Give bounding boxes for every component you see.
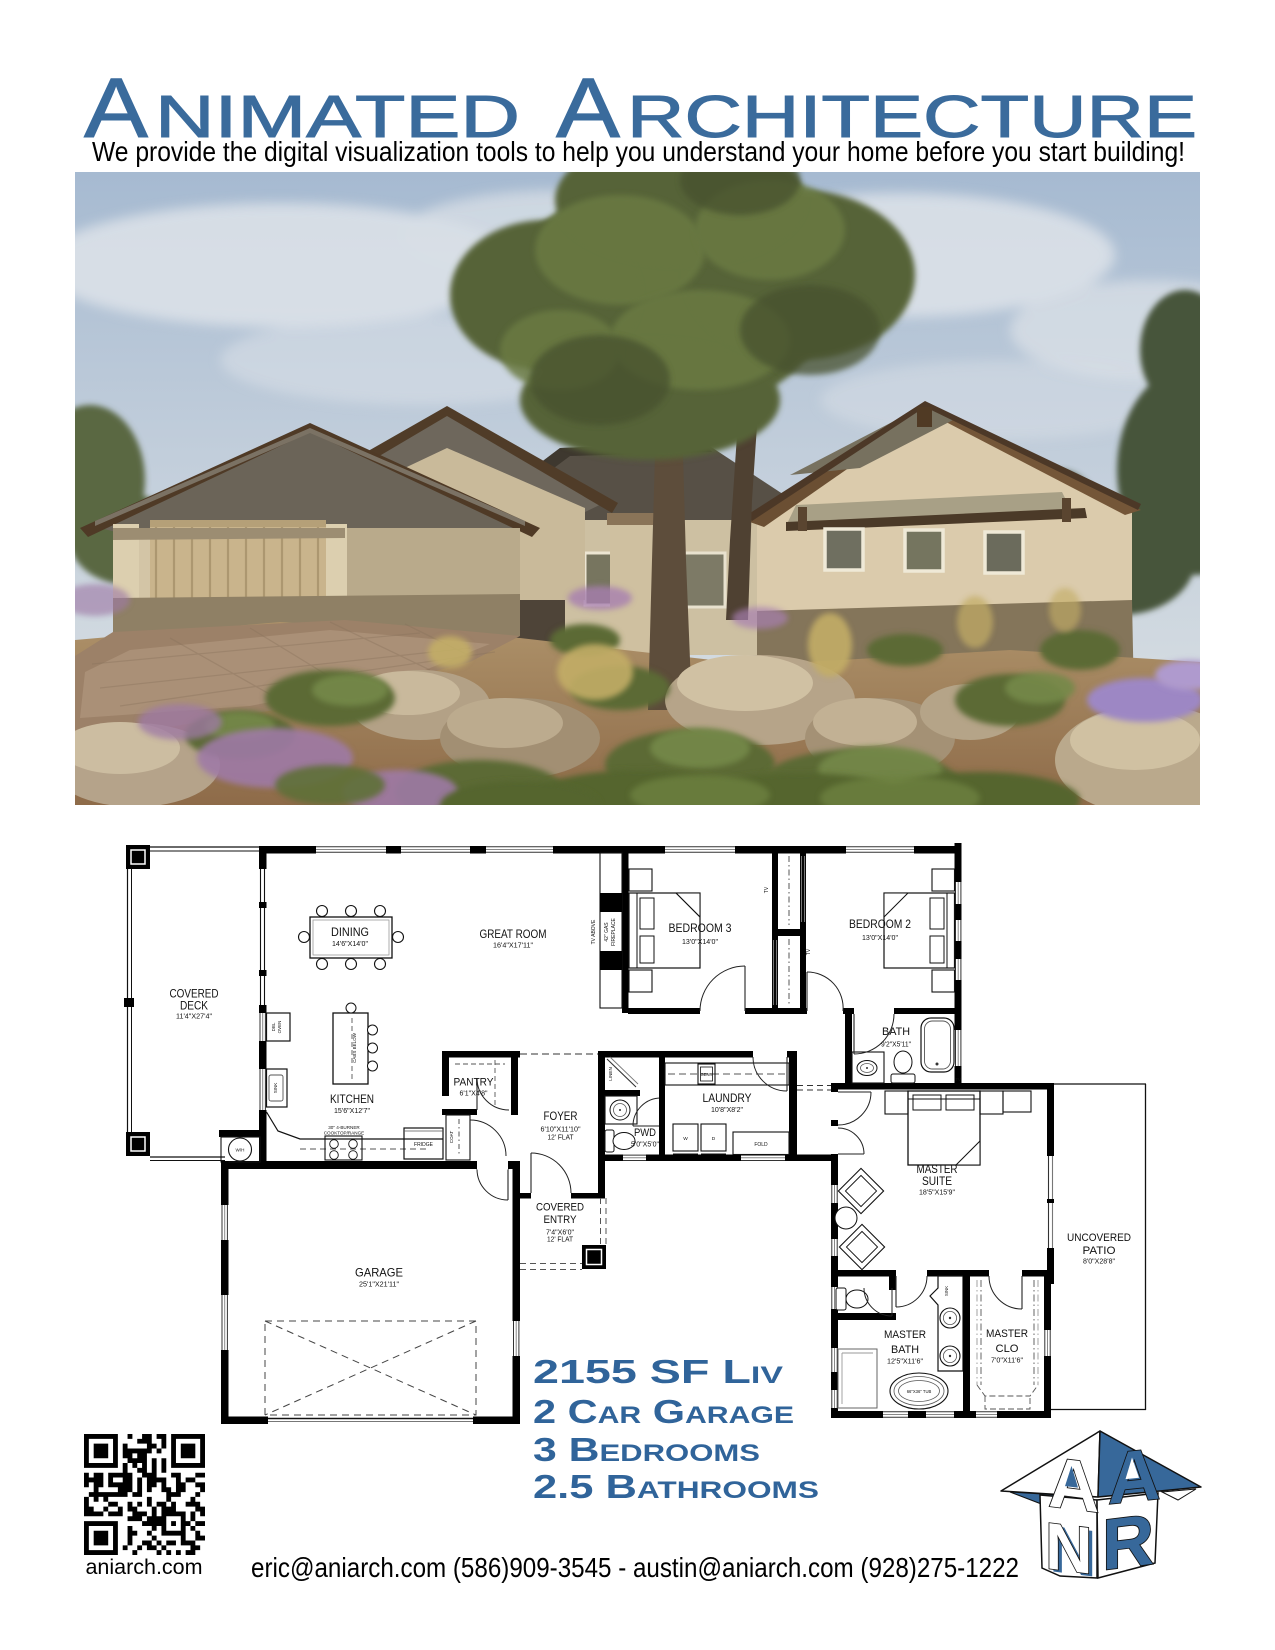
svg-text:TV: TV — [764, 886, 770, 893]
svg-text:DINING: DINING — [331, 925, 369, 939]
svg-text:DBL: DBL — [271, 1022, 276, 1031]
svg-text:FRIDGE: FRIDGE — [414, 1142, 434, 1148]
svg-text:BATH: BATH — [882, 1026, 910, 1038]
svg-text:PANTRY: PANTRY — [454, 1077, 494, 1089]
svg-text:2.5 BATHROOMS: 2.5 BATHROOMS — [533, 1468, 819, 1505]
svg-text:MASTER: MASTER — [884, 1329, 926, 1341]
svg-text:OVEN: OVEN — [277, 1021, 282, 1034]
svg-text:D: D — [712, 1136, 716, 1142]
svg-text:COAT: COAT — [449, 1131, 454, 1144]
svg-text:5'0"X5'0": 5'0"X5'0" — [631, 1142, 660, 1149]
svg-text:7'0"X11'6": 7'0"X11'6" — [991, 1358, 1024, 1365]
svg-text:42" GAS: 42" GAS — [604, 922, 610, 942]
svg-text:12'5"X11'6": 12'5"X11'6" — [887, 1359, 924, 1366]
svg-text:PATIO: PATIO — [1083, 1245, 1116, 1257]
svg-text:GENR: GENR — [700, 1072, 712, 1077]
svg-text:13'0"X14'0": 13'0"X14'0" — [682, 939, 719, 946]
svg-text:TV: TV — [955, 1077, 962, 1082]
svg-text:BATH: BATH — [891, 1344, 919, 1356]
svg-text:16'4"X17'11": 16'4"X17'11" — [493, 943, 534, 950]
svg-text:12' FLAT: 12' FLAT — [547, 1237, 574, 1244]
svg-text:R: R — [1102, 1500, 1154, 1586]
svg-text:6'1"X4'8": 6'1"X4'8" — [460, 1091, 489, 1098]
svg-text:W: W — [683, 1136, 688, 1142]
svg-text:GARAGE: GARAGE — [355, 1266, 403, 1280]
svg-text:W/H: W/H — [236, 1148, 245, 1153]
svg-text:GREAT ROOM: GREAT ROOM — [480, 927, 547, 941]
svg-text:BEDROOM 3: BEDROOM 3 — [669, 921, 732, 935]
svg-text:MASTER: MASTER — [917, 1164, 958, 1176]
svg-text:COOKTOP/RANGE: COOKTOP/RANGE — [324, 1131, 365, 1136]
svg-text:TV: TV — [806, 948, 812, 955]
svg-text:BEDROOM 2: BEDROOM 2 — [849, 917, 911, 931]
svg-text:11'4"X27'4": 11'4"X27'4" — [176, 1014, 213, 1021]
svg-text:10'8"X8'2": 10'8"X8'2" — [711, 1107, 744, 1114]
svg-text:9'2"X5'11": 9'2"X5'11" — [881, 1042, 911, 1049]
svg-text:We provide the digital visuali: We provide the digital visualization too… — [92, 136, 1185, 167]
svg-text:DECK: DECK — [180, 1001, 208, 1013]
svg-text:2155 SF LIV: 2155 SF LIV — [533, 1353, 783, 1390]
svg-text:UNCOVERED: UNCOVERED — [1067, 1232, 1131, 1244]
svg-text:FIREPLACE: FIREPLACE — [611, 917, 617, 945]
svg-text:SUITE: SUITE — [922, 1176, 952, 1188]
svg-text:FOLD: FOLD — [754, 1142, 768, 1148]
svg-text:CABS BELOW: CABS BELOW — [352, 1032, 357, 1063]
svg-text:FOYER: FOYER — [544, 1109, 578, 1123]
svg-text:13'0"X14'0": 13'0"X14'0" — [862, 935, 899, 942]
svg-text:2 CAR GARAGE: 2 CAR GARAGE — [533, 1393, 794, 1430]
svg-text:66"X36" TUB: 66"X36" TUB — [907, 1389, 932, 1394]
svg-text:aniarch.com: aniarch.com — [85, 1555, 202, 1579]
svg-text:TV ABOVE: TV ABOVE — [591, 919, 597, 944]
svg-text:eric@aniarch.com (586)909-3545: eric@aniarch.com (586)909-3545 - austin@… — [251, 1552, 1019, 1583]
svg-text:CLO: CLO — [996, 1343, 1019, 1355]
svg-text:3 BEDROOMS: 3 BEDROOMS — [533, 1431, 760, 1468]
svg-text:LAUNDRY: LAUNDRY — [703, 1091, 752, 1105]
svg-text:MASTER: MASTER — [986, 1328, 1028, 1340]
svg-text:15'6"X12'7": 15'6"X12'7" — [334, 1108, 371, 1115]
svg-text:SINK: SINK — [944, 1286, 949, 1296]
svg-text:7'4"X6'0": 7'4"X6'0" — [546, 1230, 575, 1237]
svg-text:25'1"X21'11": 25'1"X21'11" — [359, 1282, 400, 1289]
svg-text:LINEN: LINEN — [608, 1067, 613, 1081]
svg-text:14'6"X14'0": 14'6"X14'0" — [332, 941, 369, 948]
svg-text:12' FLAT: 12' FLAT — [548, 1135, 575, 1142]
svg-text:KITCHEN: KITCHEN — [330, 1092, 374, 1106]
svg-text:8'0"X28'8": 8'0"X28'8" — [1083, 1259, 1116, 1266]
svg-text:SINK: SINK — [273, 1083, 278, 1094]
svg-text:COVERED: COVERED — [536, 1202, 584, 1214]
svg-text:6'10"X11'10": 6'10"X11'10" — [541, 1127, 582, 1134]
svg-text:30" 4-BURNER: 30" 4-BURNER — [328, 1125, 360, 1130]
svg-text:ENTRY: ENTRY — [544, 1214, 577, 1226]
svg-text:18'5"X15'9": 18'5"X15'9" — [919, 1190, 956, 1197]
svg-text:COVERED: COVERED — [170, 989, 219, 1001]
svg-text:PWD: PWD — [634, 1127, 656, 1139]
svg-text:N: N — [1045, 1509, 1093, 1589]
